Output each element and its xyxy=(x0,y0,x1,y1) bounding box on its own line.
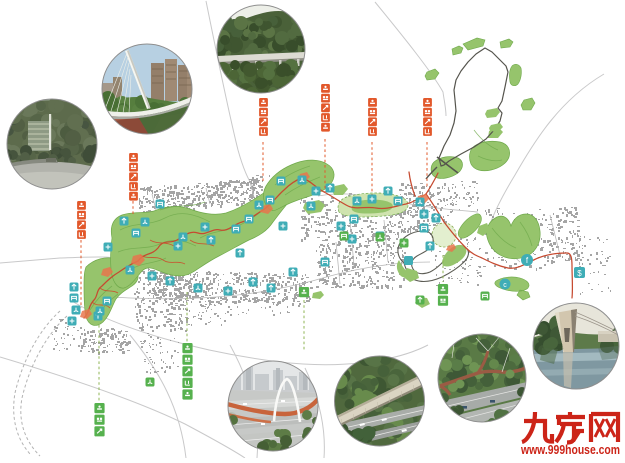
svg-text:c: c xyxy=(503,282,507,289)
svg-text:$: $ xyxy=(577,269,582,278)
svg-text:www.999house.com: www.999house.com xyxy=(520,442,620,457)
